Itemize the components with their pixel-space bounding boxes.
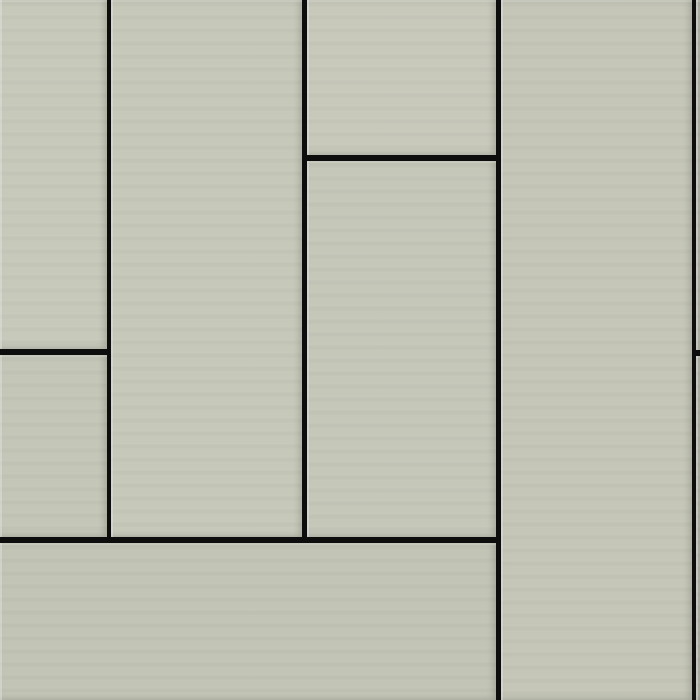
plank-col4-full bbox=[501, 0, 692, 700]
plank-col3-middle bbox=[307, 161, 496, 537]
cladding-texture bbox=[0, 0, 700, 700]
plank-bottom-wide bbox=[0, 543, 496, 700]
plank-left-middle bbox=[0, 355, 107, 537]
plank-right-sliver-top bbox=[696, 0, 700, 350]
plank-col2-tall bbox=[111, 0, 302, 537]
plank-right-sliver-bottom bbox=[696, 356, 700, 700]
plank-left-top bbox=[0, 0, 107, 349]
plank-col3-top bbox=[307, 0, 496, 155]
